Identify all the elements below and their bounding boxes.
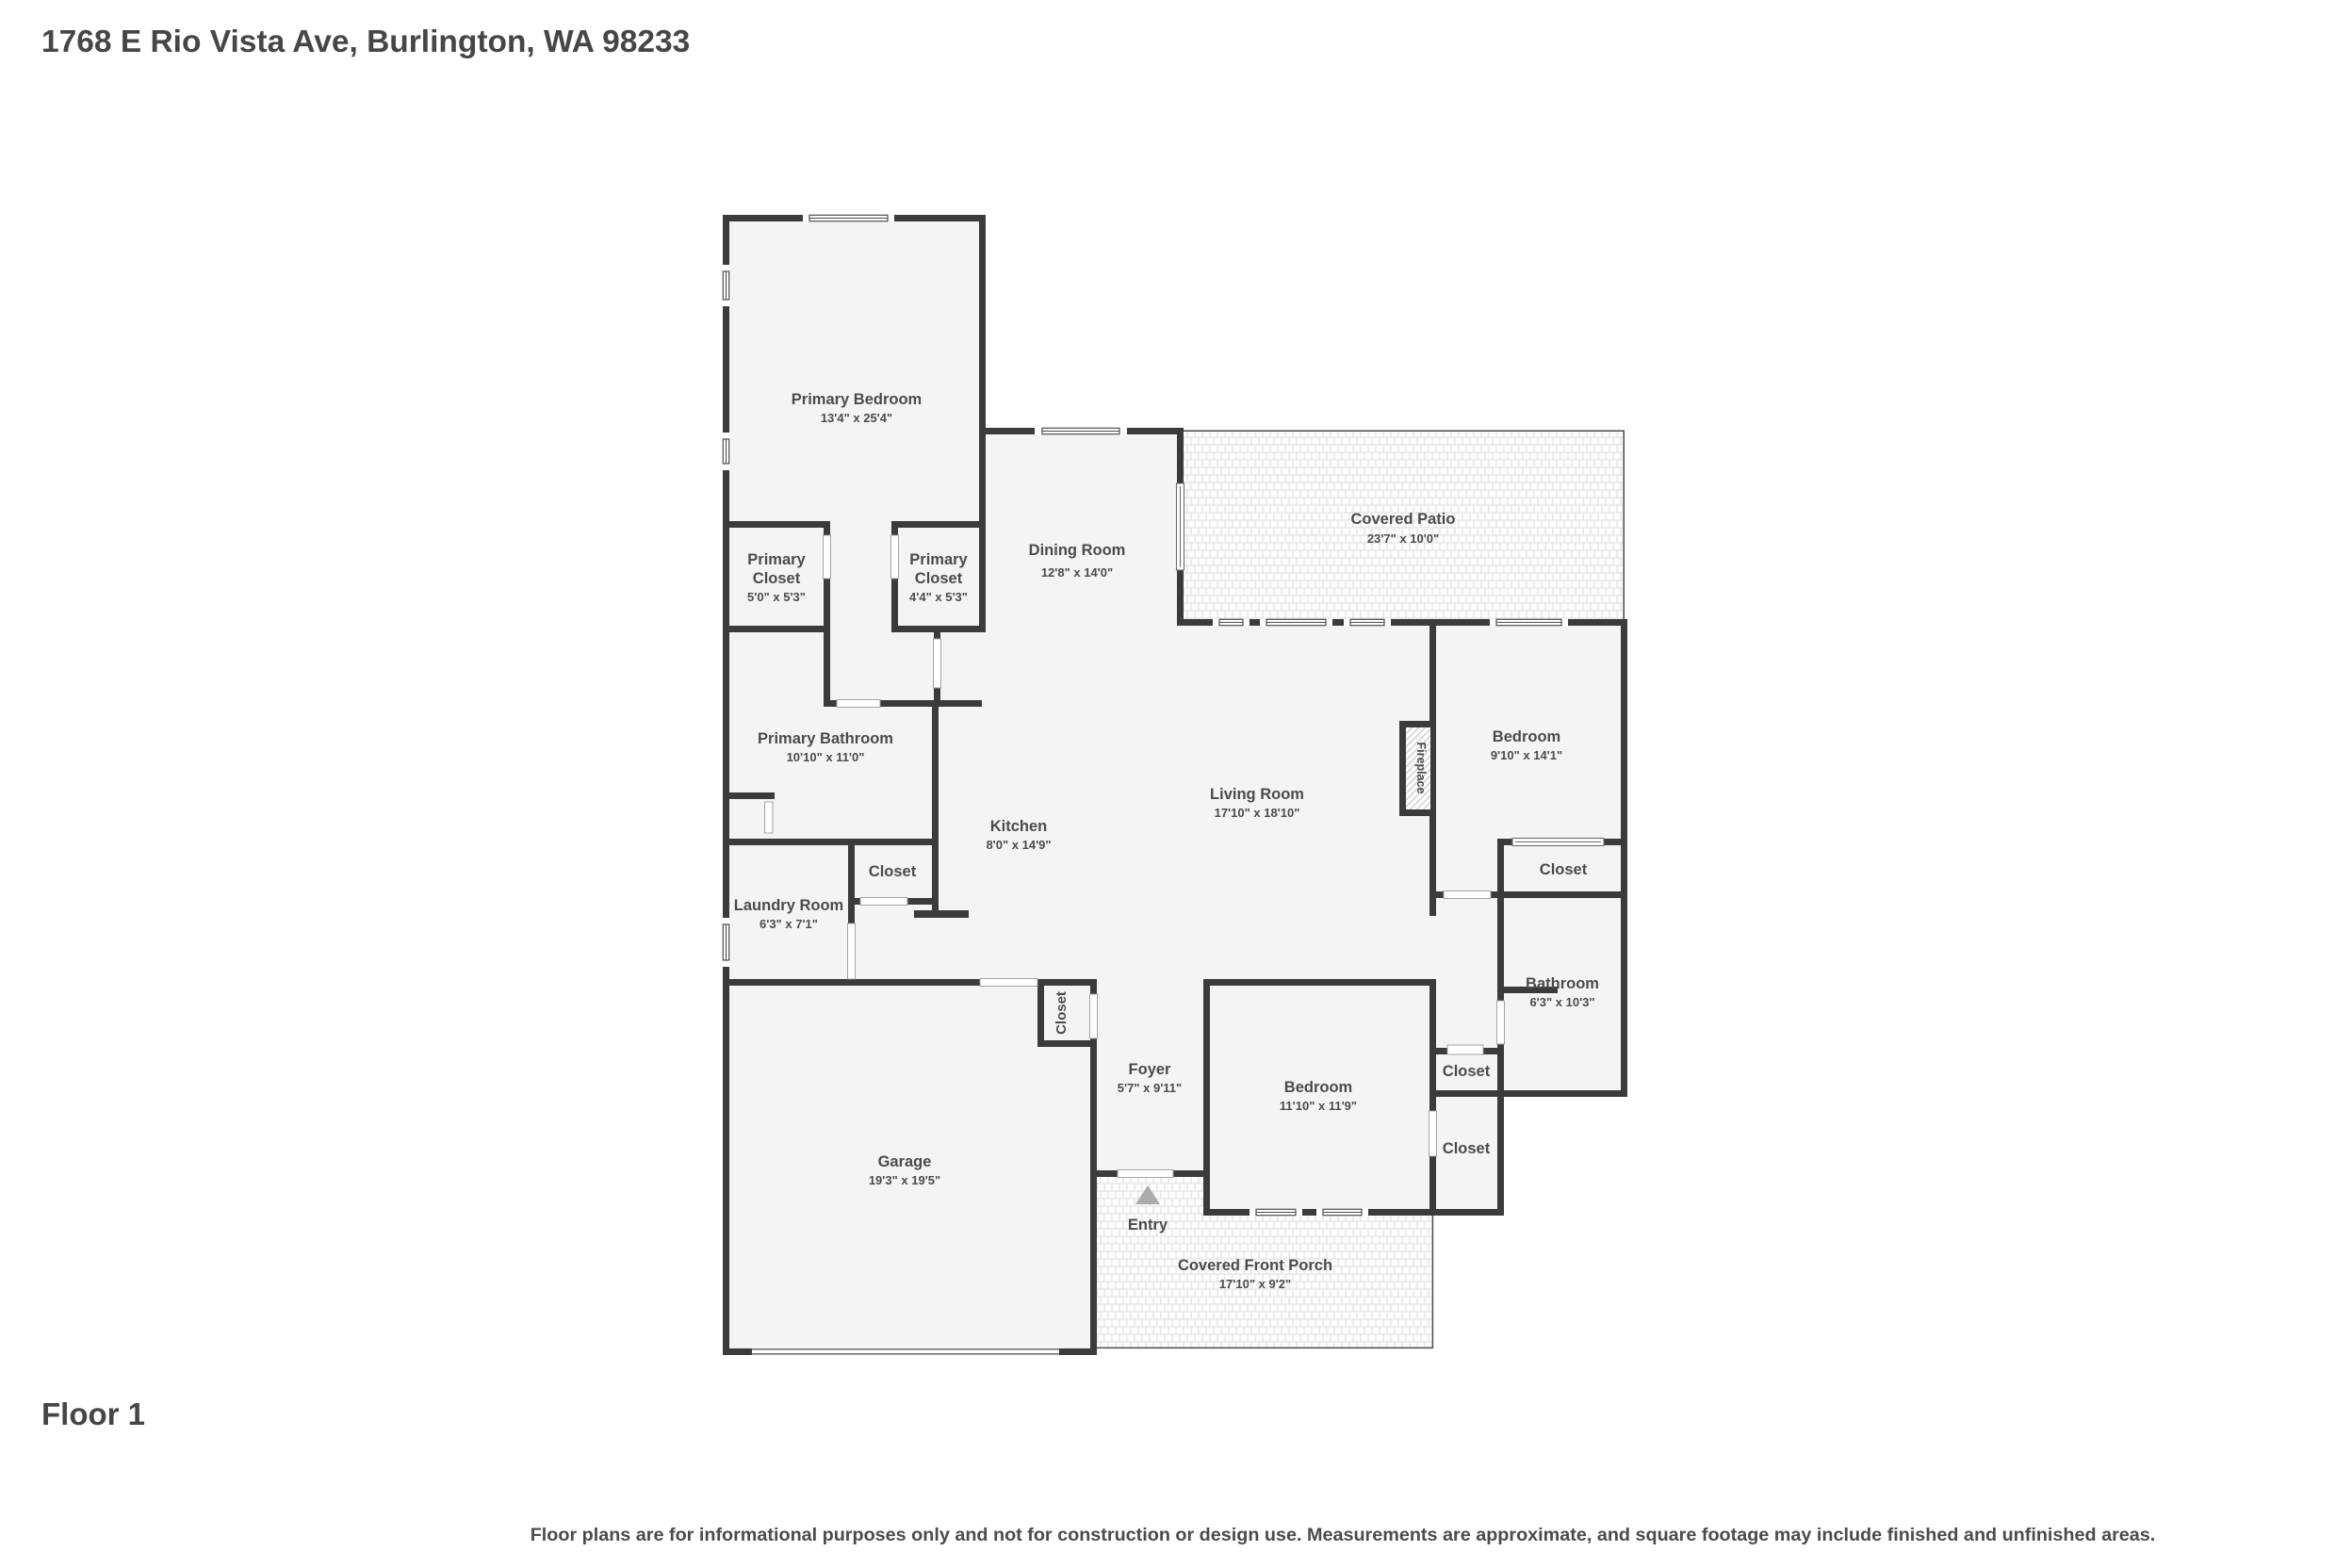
svg-text:Closet: Closet (1053, 991, 1070, 1035)
svg-text:Primary: Primary (747, 551, 806, 568)
svg-text:Bedroom: Bedroom (1284, 1079, 1352, 1096)
svg-text:Dining Room: Dining Room (1029, 542, 1126, 559)
svg-text:1768 E Rio Vista Ave, Burlingt: 1768 E Rio Vista Ave, Burlington, WA 982… (41, 24, 690, 59)
svg-text:Kitchen: Kitchen (990, 818, 1048, 835)
svg-text:Closet: Closet (1540, 861, 1588, 878)
svg-text:Fireplace: Fireplace (1414, 743, 1428, 794)
svg-text:Laundry Room: Laundry Room (734, 897, 843, 914)
svg-text:6'3" x 10'3": 6'3" x 10'3" (1529, 995, 1594, 1009)
svg-text:10'10" x 11'0": 10'10" x 11'0" (787, 750, 865, 764)
svg-text:Floor plans are for informatio: Floor plans are for informational purpos… (531, 1525, 2156, 1545)
svg-text:23'7" x 10'0": 23'7" x 10'0" (1367, 531, 1439, 546)
svg-text:4'4" x 5'3": 4'4" x 5'3" (909, 590, 968, 604)
svg-text:Garage: Garage (878, 1153, 932, 1170)
svg-text:Closet: Closet (915, 570, 963, 587)
svg-text:Closet: Closet (1443, 1063, 1491, 1080)
svg-text:Primary: Primary (909, 551, 968, 568)
svg-text:Bedroom: Bedroom (1493, 728, 1560, 745)
svg-text:13'4" x 25'4": 13'4" x 25'4" (821, 411, 892, 425)
svg-text:9'10" x 14'1": 9'10" x 14'1" (1491, 748, 1562, 762)
svg-text:Living Room: Living Room (1210, 786, 1304, 803)
svg-text:12'8" x 14'0": 12'8" x 14'0" (1041, 565, 1113, 580)
svg-text:Bathroom: Bathroom (1526, 975, 1599, 992)
svg-text:Closet: Closet (753, 570, 801, 587)
svg-text:19'3" x 19'5": 19'3" x 19'5" (869, 1173, 940, 1187)
svg-text:Primary Bathroom: Primary Bathroom (758, 730, 893, 747)
svg-text:Entry: Entry (1128, 1217, 1168, 1233)
svg-text:5'7" x 9'11": 5'7" x 9'11" (1118, 1081, 1182, 1095)
svg-text:Closet: Closet (1443, 1140, 1491, 1157)
svg-text:Covered Patio: Covered Patio (1351, 511, 1456, 528)
svg-text:Primary Bedroom: Primary Bedroom (792, 391, 922, 408)
svg-text:Closet: Closet (869, 863, 917, 880)
svg-text:Covered Front Porch: Covered Front Porch (1178, 1257, 1332, 1274)
svg-text:6'3" x 7'1": 6'3" x 7'1" (759, 917, 818, 931)
svg-text:Floor 1: Floor 1 (41, 1396, 145, 1431)
svg-text:17'10" x 9'2": 17'10" x 9'2" (1219, 1277, 1291, 1291)
svg-text:5'0" x 5'3": 5'0" x 5'3" (747, 590, 806, 604)
svg-text:8'0" x 14'9": 8'0" x 14'9" (986, 838, 1051, 852)
svg-text:Foyer: Foyer (1129, 1061, 1172, 1078)
svg-text:11'10" x 11'9": 11'10" x 11'9" (1280, 1099, 1357, 1113)
svg-text:17'10" x 18'10": 17'10" x 18'10" (1215, 806, 1300, 820)
